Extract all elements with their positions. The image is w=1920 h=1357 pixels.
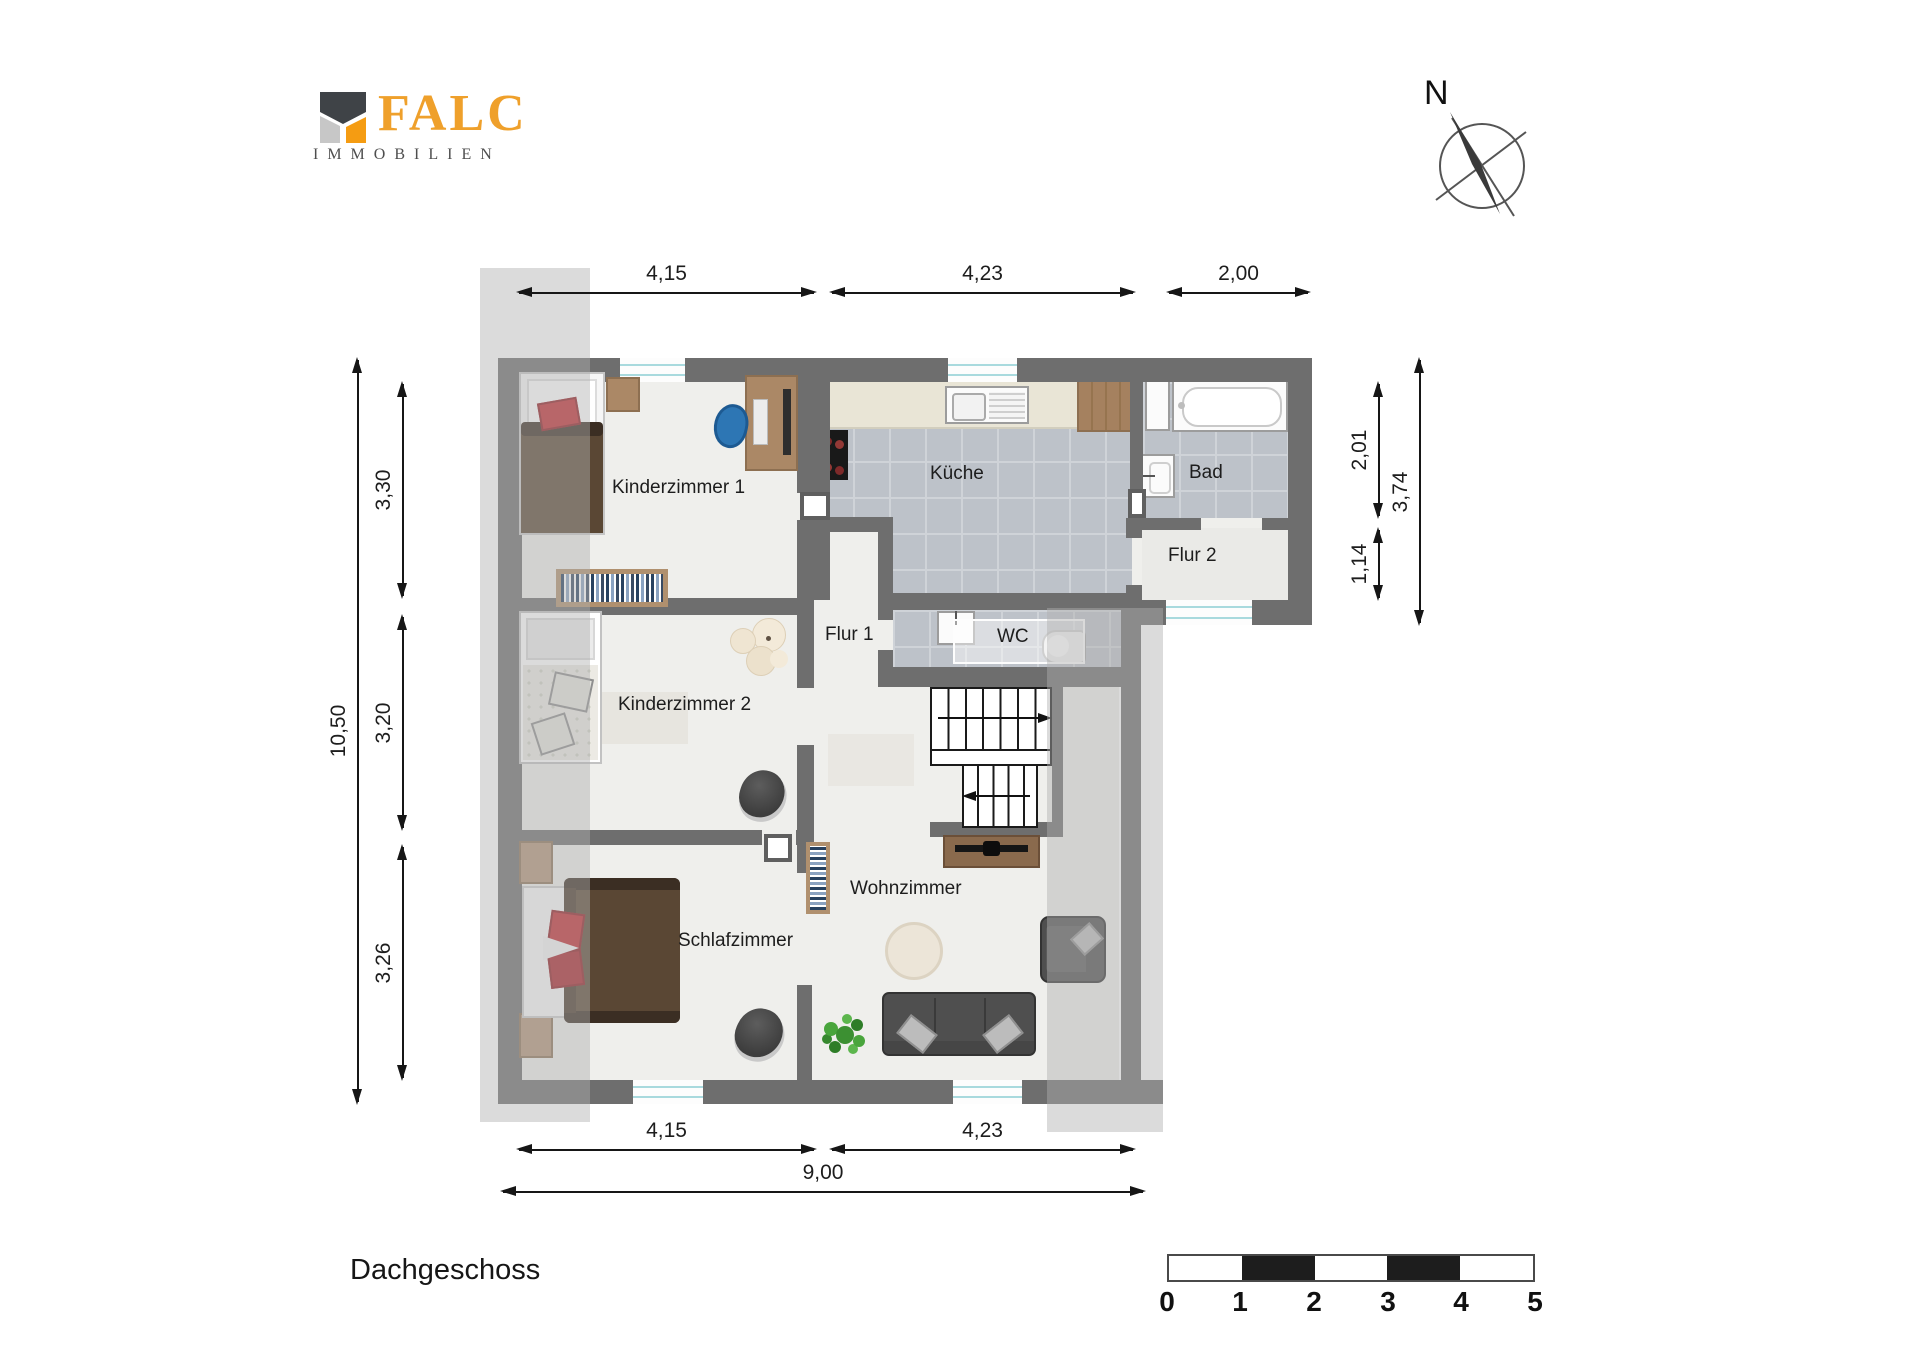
room-label-bad: Bad bbox=[1189, 462, 1223, 484]
stairs-down-arrow bbox=[976, 795, 1030, 797]
wall-bad-bottom-r bbox=[1262, 518, 1312, 530]
sofa bbox=[882, 992, 1036, 1056]
door-kinderzimmer1 bbox=[800, 492, 830, 520]
wall-wc-left-a bbox=[878, 610, 893, 620]
kitchen-cabinet bbox=[1077, 380, 1132, 432]
window-schlafzimmer bbox=[633, 1080, 703, 1104]
falc-house-icon bbox=[320, 92, 368, 144]
plant bbox=[818, 1010, 870, 1060]
wall-flur2-left-a bbox=[1126, 518, 1142, 538]
scale-tick-0: 0 bbox=[1159, 1286, 1175, 1318]
wall-kz2-flur-a bbox=[797, 615, 814, 688]
wall-flur2-left-b bbox=[1126, 585, 1142, 610]
compass-north-icon bbox=[1418, 88, 1538, 228]
scale-tick-1: 1 bbox=[1232, 1286, 1248, 1318]
scale-tick-3: 3 bbox=[1380, 1286, 1396, 1318]
roof-slope-overlay-left bbox=[480, 268, 590, 1122]
scale-tick-5: 5 bbox=[1527, 1286, 1543, 1318]
scale-bar bbox=[1167, 1254, 1535, 1282]
door-schlafzimmer bbox=[764, 834, 792, 862]
wall-schlaf-wohn-b bbox=[797, 985, 812, 1080]
room-label-kueche: Küche bbox=[930, 463, 984, 485]
roof-slope-overlay-right bbox=[1047, 608, 1163, 1132]
kitchen-sink bbox=[945, 386, 1029, 424]
wall-kz1-flur bbox=[797, 382, 830, 493]
flur1-passage bbox=[830, 532, 878, 600]
wall-passage-stub bbox=[878, 532, 893, 610]
wall-right-upper bbox=[1288, 358, 1312, 625]
bad-washbasin bbox=[1141, 454, 1175, 498]
tv-sideboard bbox=[943, 835, 1040, 868]
kz1-nightstand bbox=[606, 377, 640, 412]
floorplan-page: FALC IMMOBILIEN N bbox=[0, 0, 1920, 1357]
room-label-flur1: Flur 1 bbox=[825, 624, 874, 646]
wall-kz2-flur-b bbox=[797, 745, 814, 830]
room-label-wohnzimmer: Wohnzimmer bbox=[850, 878, 962, 900]
stairs-up-arrow bbox=[938, 717, 1038, 719]
window-flur2 bbox=[1166, 600, 1252, 625]
room-label-wc: WC bbox=[997, 626, 1029, 648]
scale-tick-4: 4 bbox=[1453, 1286, 1469, 1318]
bad-cabinet bbox=[1145, 379, 1170, 431]
wall-kz1-flur-b bbox=[797, 520, 830, 600]
flur1-rug bbox=[828, 734, 914, 786]
window-wohnzimmer bbox=[953, 1080, 1022, 1104]
wall-kueche-passage bbox=[830, 517, 893, 532]
wall-kueche-bad bbox=[1130, 382, 1143, 489]
wohn-bookshelf bbox=[806, 842, 830, 914]
logo-subtitle-text: IMMOBILIEN bbox=[313, 146, 501, 164]
scale-tick-2: 2 bbox=[1306, 1286, 1322, 1318]
window-kueche bbox=[948, 358, 1017, 382]
room-label-kinderzimmer1: Kinderzimmer 1 bbox=[612, 477, 745, 499]
kz2-teddy-bear bbox=[726, 610, 790, 680]
floor-title: Dachgeschoss bbox=[350, 1254, 540, 1287]
wohn-round-rug bbox=[885, 922, 943, 980]
room-label-kinderzimmer2: Kinderzimmer 2 bbox=[618, 694, 751, 716]
bathtub bbox=[1172, 378, 1288, 432]
room-label-flur2: Flur 2 bbox=[1168, 545, 1217, 567]
door-bad bbox=[1128, 489, 1146, 518]
kz1-desk bbox=[745, 375, 798, 471]
room-label-schlafzimmer: Schlafzimmer bbox=[678, 930, 793, 952]
logo-brand-text: FALC bbox=[378, 84, 528, 143]
